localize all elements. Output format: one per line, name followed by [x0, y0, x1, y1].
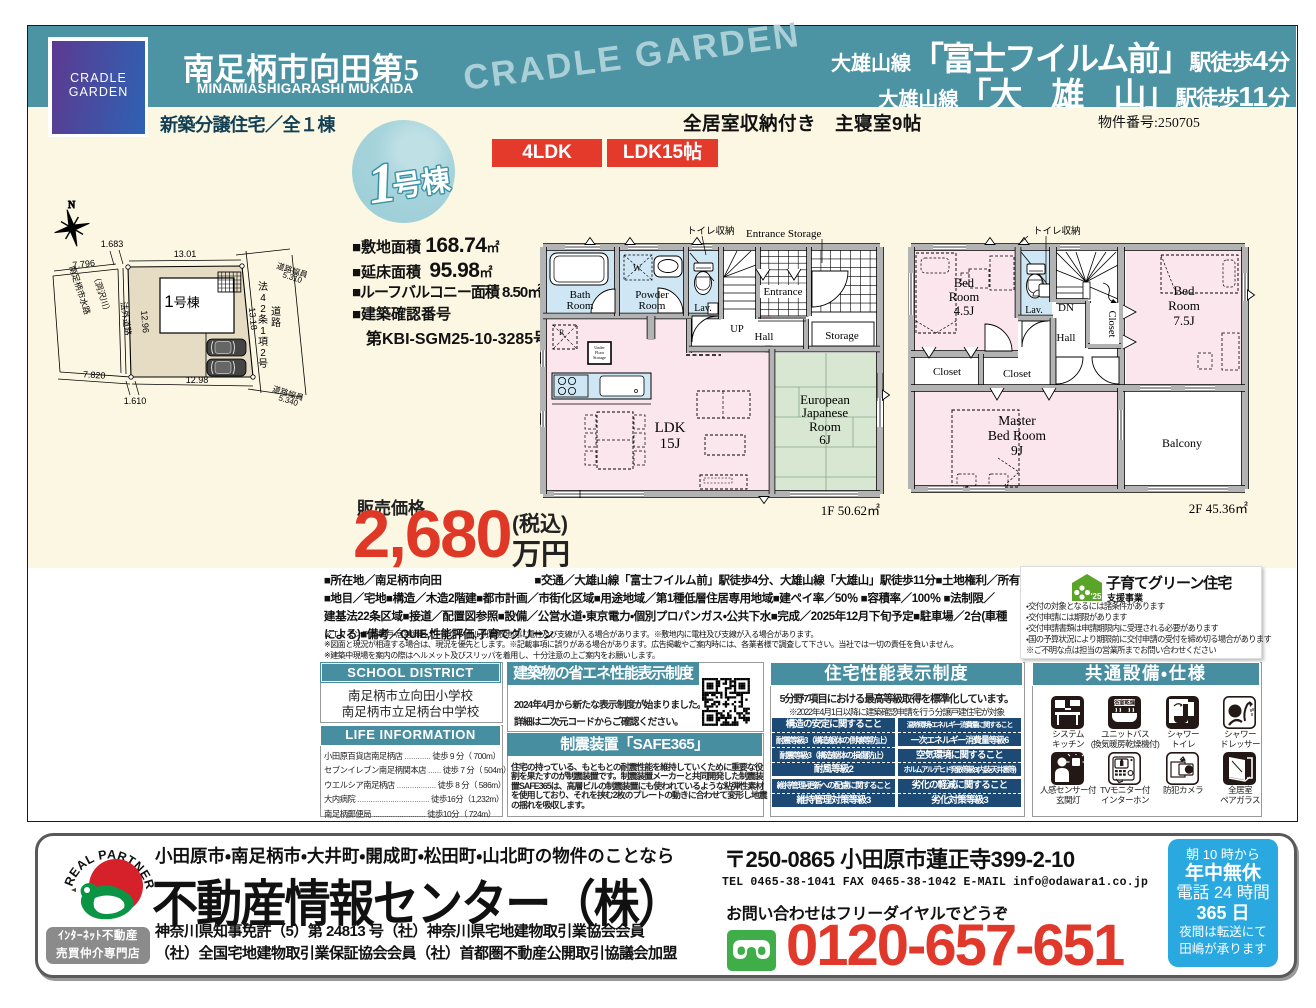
svg-text:1号棟: 1号棟 [164, 292, 199, 311]
svg-text:'25: '25 [1091, 592, 1102, 601]
svg-text:12.96: 12.96 [139, 310, 151, 333]
svg-text:Room: Room [949, 290, 980, 304]
svg-text:Master: Master [998, 413, 1036, 428]
svg-text:Closet: Closet [1106, 311, 1117, 338]
svg-text:DN: DN [1058, 302, 1074, 314]
svg-text:条: 条 [258, 313, 268, 326]
svg-text:1: 1 [260, 326, 266, 337]
svg-text:法: 法 [258, 281, 268, 293]
svg-text:2F 45.36㎡: 2F 45.36㎡ [1189, 501, 1248, 516]
svg-text:Room: Room [567, 300, 594, 312]
svg-text:15J: 15J [660, 436, 681, 452]
svg-text:路: 路 [271, 316, 281, 329]
svg-text:Bed Room: Bed Room [988, 428, 1047, 443]
svg-text:2: 2 [260, 348, 266, 359]
svg-text:LDK: LDK [655, 420, 686, 436]
svg-text:1.683: 1.683 [101, 239, 124, 249]
svg-text:Closet: Closet [933, 366, 961, 378]
svg-text:号: 号 [258, 358, 268, 370]
svg-text:Storage: Storage [593, 355, 606, 360]
svg-text:4.5J: 4.5J [954, 304, 975, 318]
svg-text:号棟: 号棟 [390, 163, 453, 204]
svg-text:W: W [633, 263, 642, 273]
svg-text:トイレ収納: トイレ収納 [1033, 225, 1081, 237]
svg-text:7.5J: 7.5J [1173, 313, 1194, 328]
svg-text:Hall: Hall [755, 331, 774, 343]
svg-text:項: 項 [258, 336, 268, 348]
svg-text:Japanese: Japanese [802, 405, 848, 420]
svg-text:道: 道 [271, 305, 281, 318]
svg-text:1F 50.62㎡: 1F 50.62㎡ [821, 503, 880, 518]
svg-text:Entrance Storage: Entrance Storage [746, 228, 822, 240]
svg-text:浴室乾燥: 浴室乾燥 [1114, 699, 1136, 707]
svg-text:7.820: 7.820 [83, 369, 106, 381]
svg-text:Bed: Bed [1174, 283, 1195, 298]
svg-text:4: 4 [260, 293, 266, 304]
svg-text:Lav.: Lav. [694, 303, 711, 314]
svg-text:Entrance: Entrance [763, 286, 802, 298]
svg-text:UP: UP [730, 324, 744, 335]
svg-text:12.98: 12.98 [186, 375, 209, 385]
svg-text:R: R [559, 328, 565, 337]
svg-text:Lav.: Lav. [1025, 305, 1042, 316]
svg-text:13.01: 13.01 [174, 249, 197, 259]
svg-text:Hall: Hall [1057, 332, 1076, 344]
svg-text:Closet: Closet [1003, 368, 1031, 380]
svg-text:（洞沢川）: （洞沢川） [91, 272, 114, 316]
svg-text:Balcony: Balcony [1162, 436, 1202, 450]
svg-text:Storage: Storage [825, 330, 859, 342]
svg-text:9J: 9J [1011, 443, 1023, 458]
svg-text:N: N [68, 200, 75, 211]
svg-text:Room: Room [639, 300, 666, 312]
svg-text:2: 2 [260, 304, 266, 315]
svg-text:6J: 6J [819, 432, 831, 447]
svg-text:1.610: 1.610 [124, 396, 147, 406]
svg-text:Bed: Bed [954, 276, 975, 290]
svg-text:Room: Room [1168, 298, 1200, 313]
svg-text:トイレ収納: トイレ収納 [687, 225, 735, 237]
